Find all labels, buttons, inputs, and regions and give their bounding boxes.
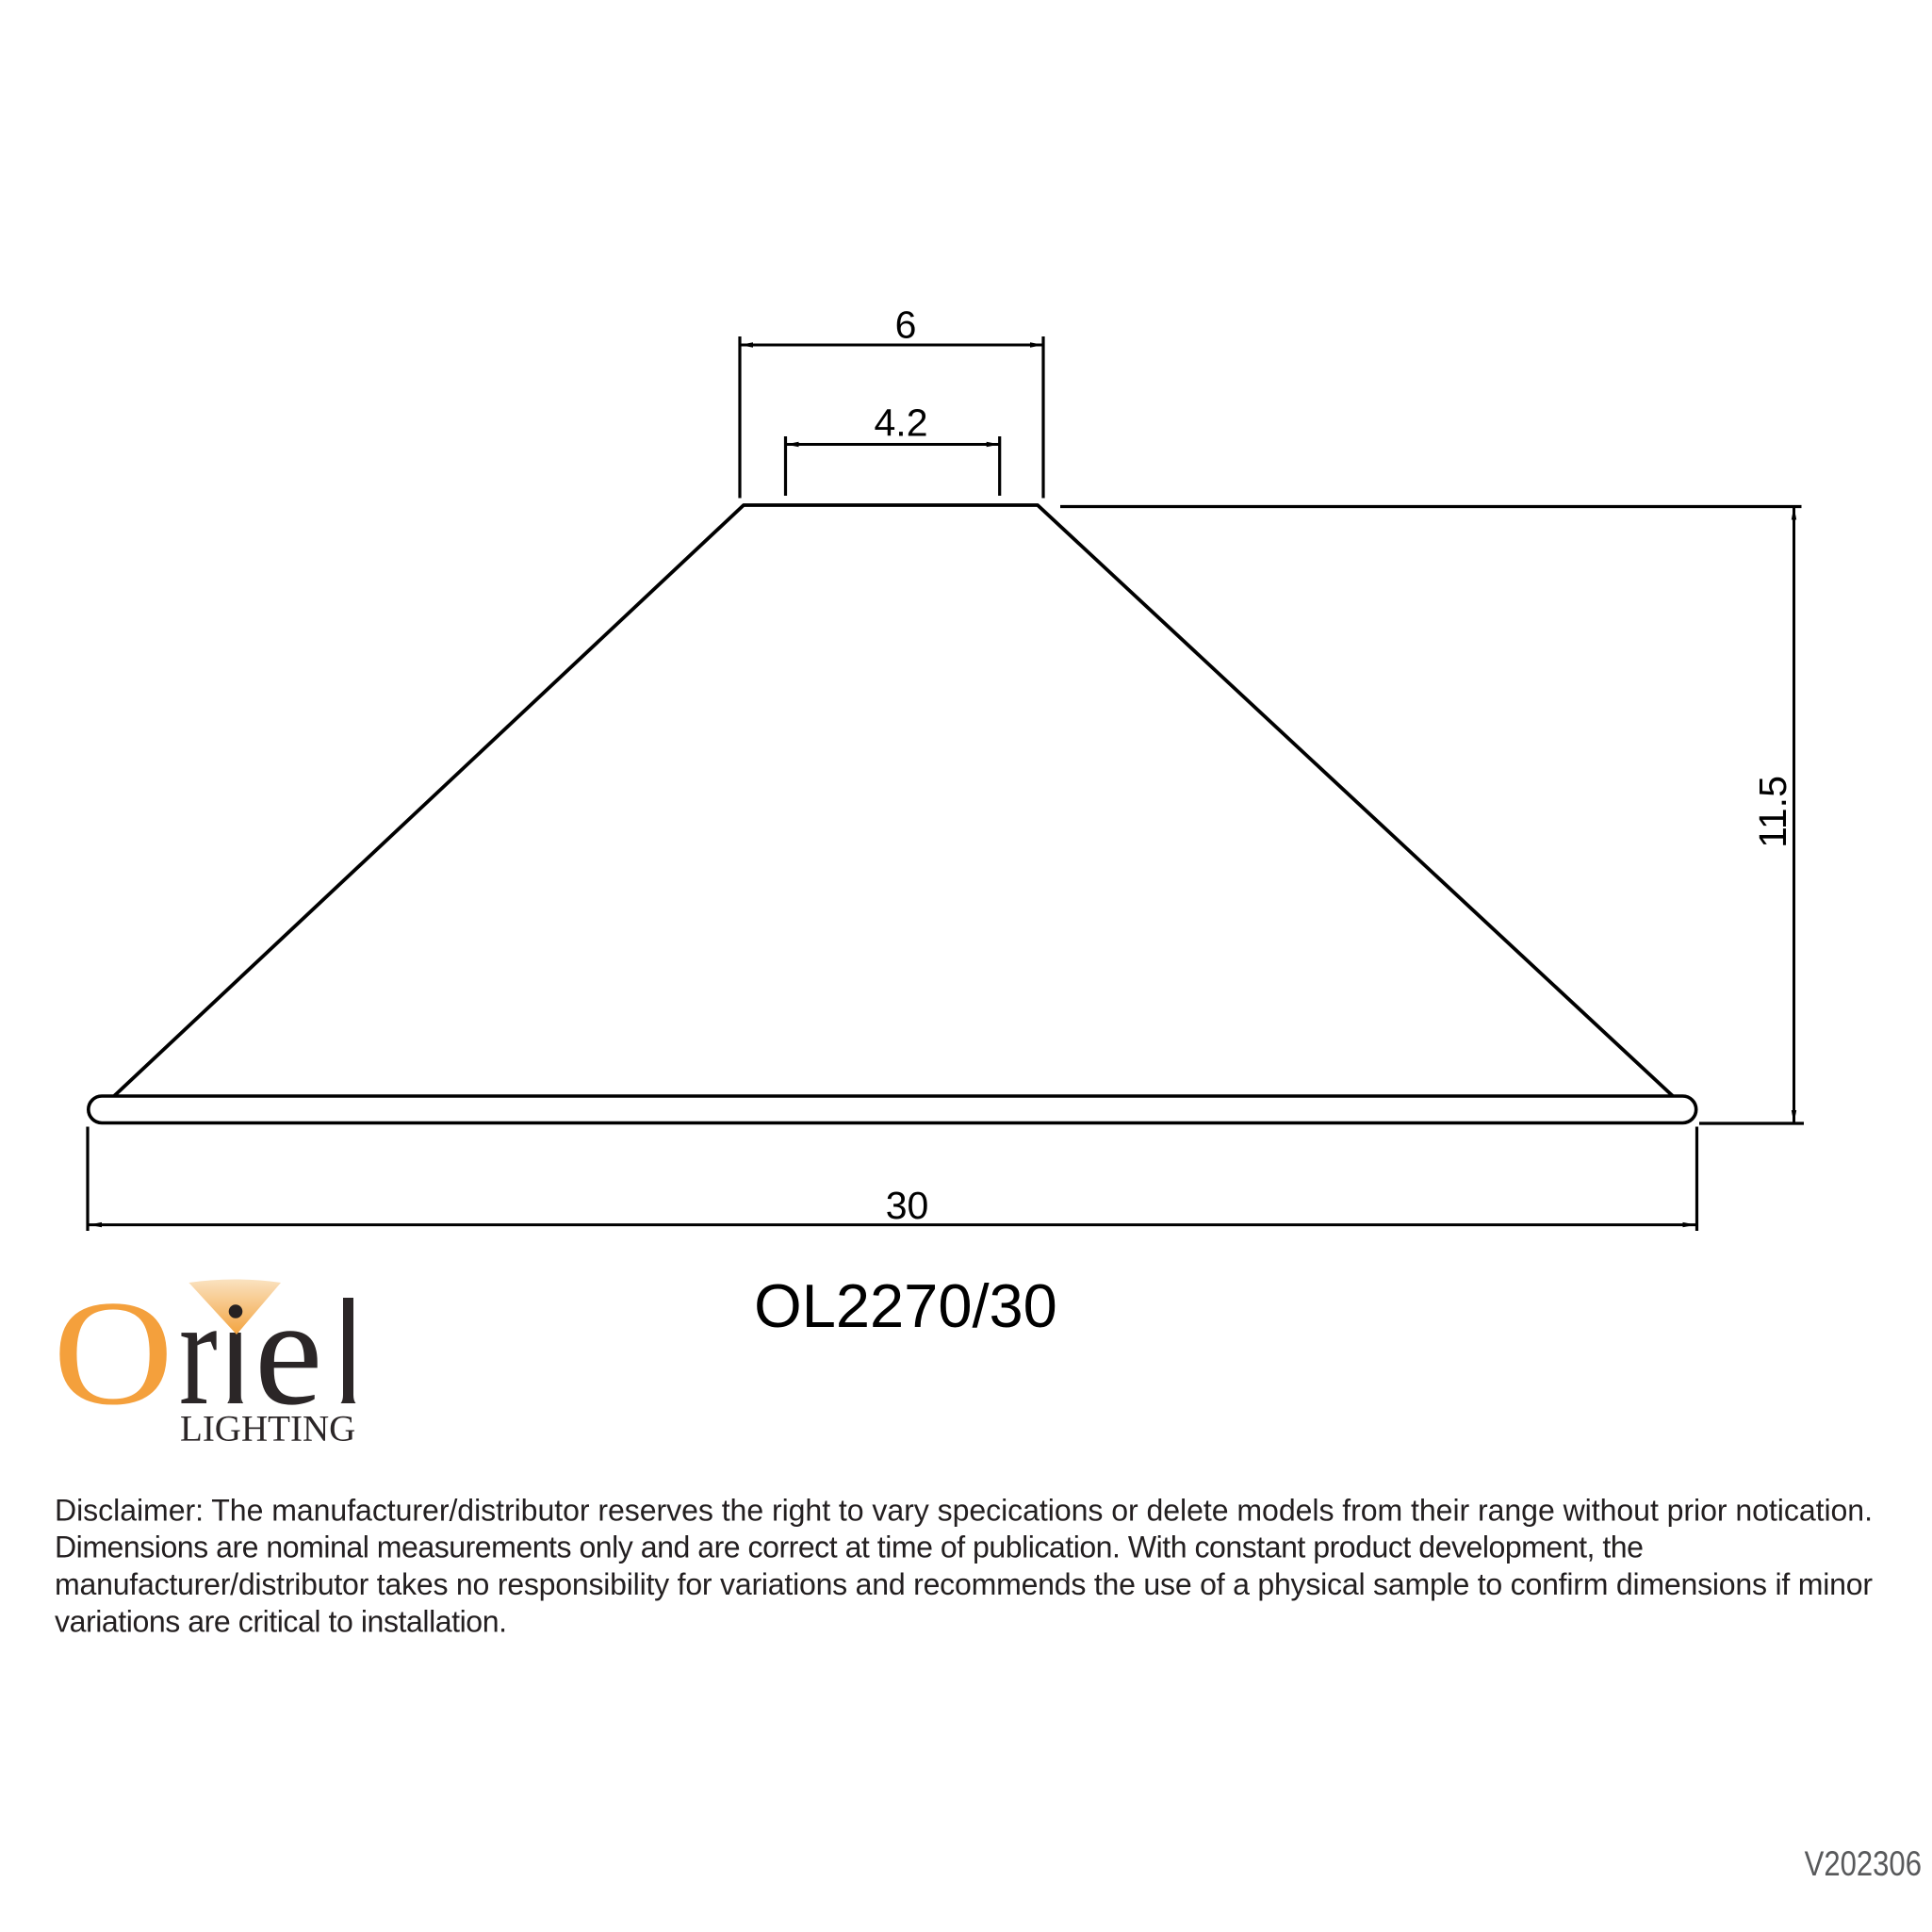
svg-text:Dimensions are nominal measure: Dimensions are nominal measurements only…	[55, 1531, 1644, 1564]
svg-text:variations are critical to ins: variations are critical to installation.	[55, 1604, 507, 1638]
svg-text:OL2270/30: OL2270/30	[754, 1271, 1057, 1340]
svg-text:LIGHTING: LIGHTING	[180, 1409, 355, 1449]
svg-text:4.2: 4.2	[875, 401, 928, 445]
svg-text:O: O	[53, 1270, 173, 1436]
svg-text:manufacturer/distributor takes: manufacturer/distributor takes no respon…	[55, 1567, 1873, 1601]
svg-text:V202306: V202306	[1805, 1845, 1922, 1884]
svg-text:11.5: 11.5	[1751, 776, 1794, 848]
svg-text:Disclaimer: The manufacturer/d: Disclaimer: The manufacturer/distributor…	[55, 1493, 1873, 1527]
svg-text:30: 30	[886, 1184, 929, 1227]
svg-text:6: 6	[895, 303, 917, 347]
